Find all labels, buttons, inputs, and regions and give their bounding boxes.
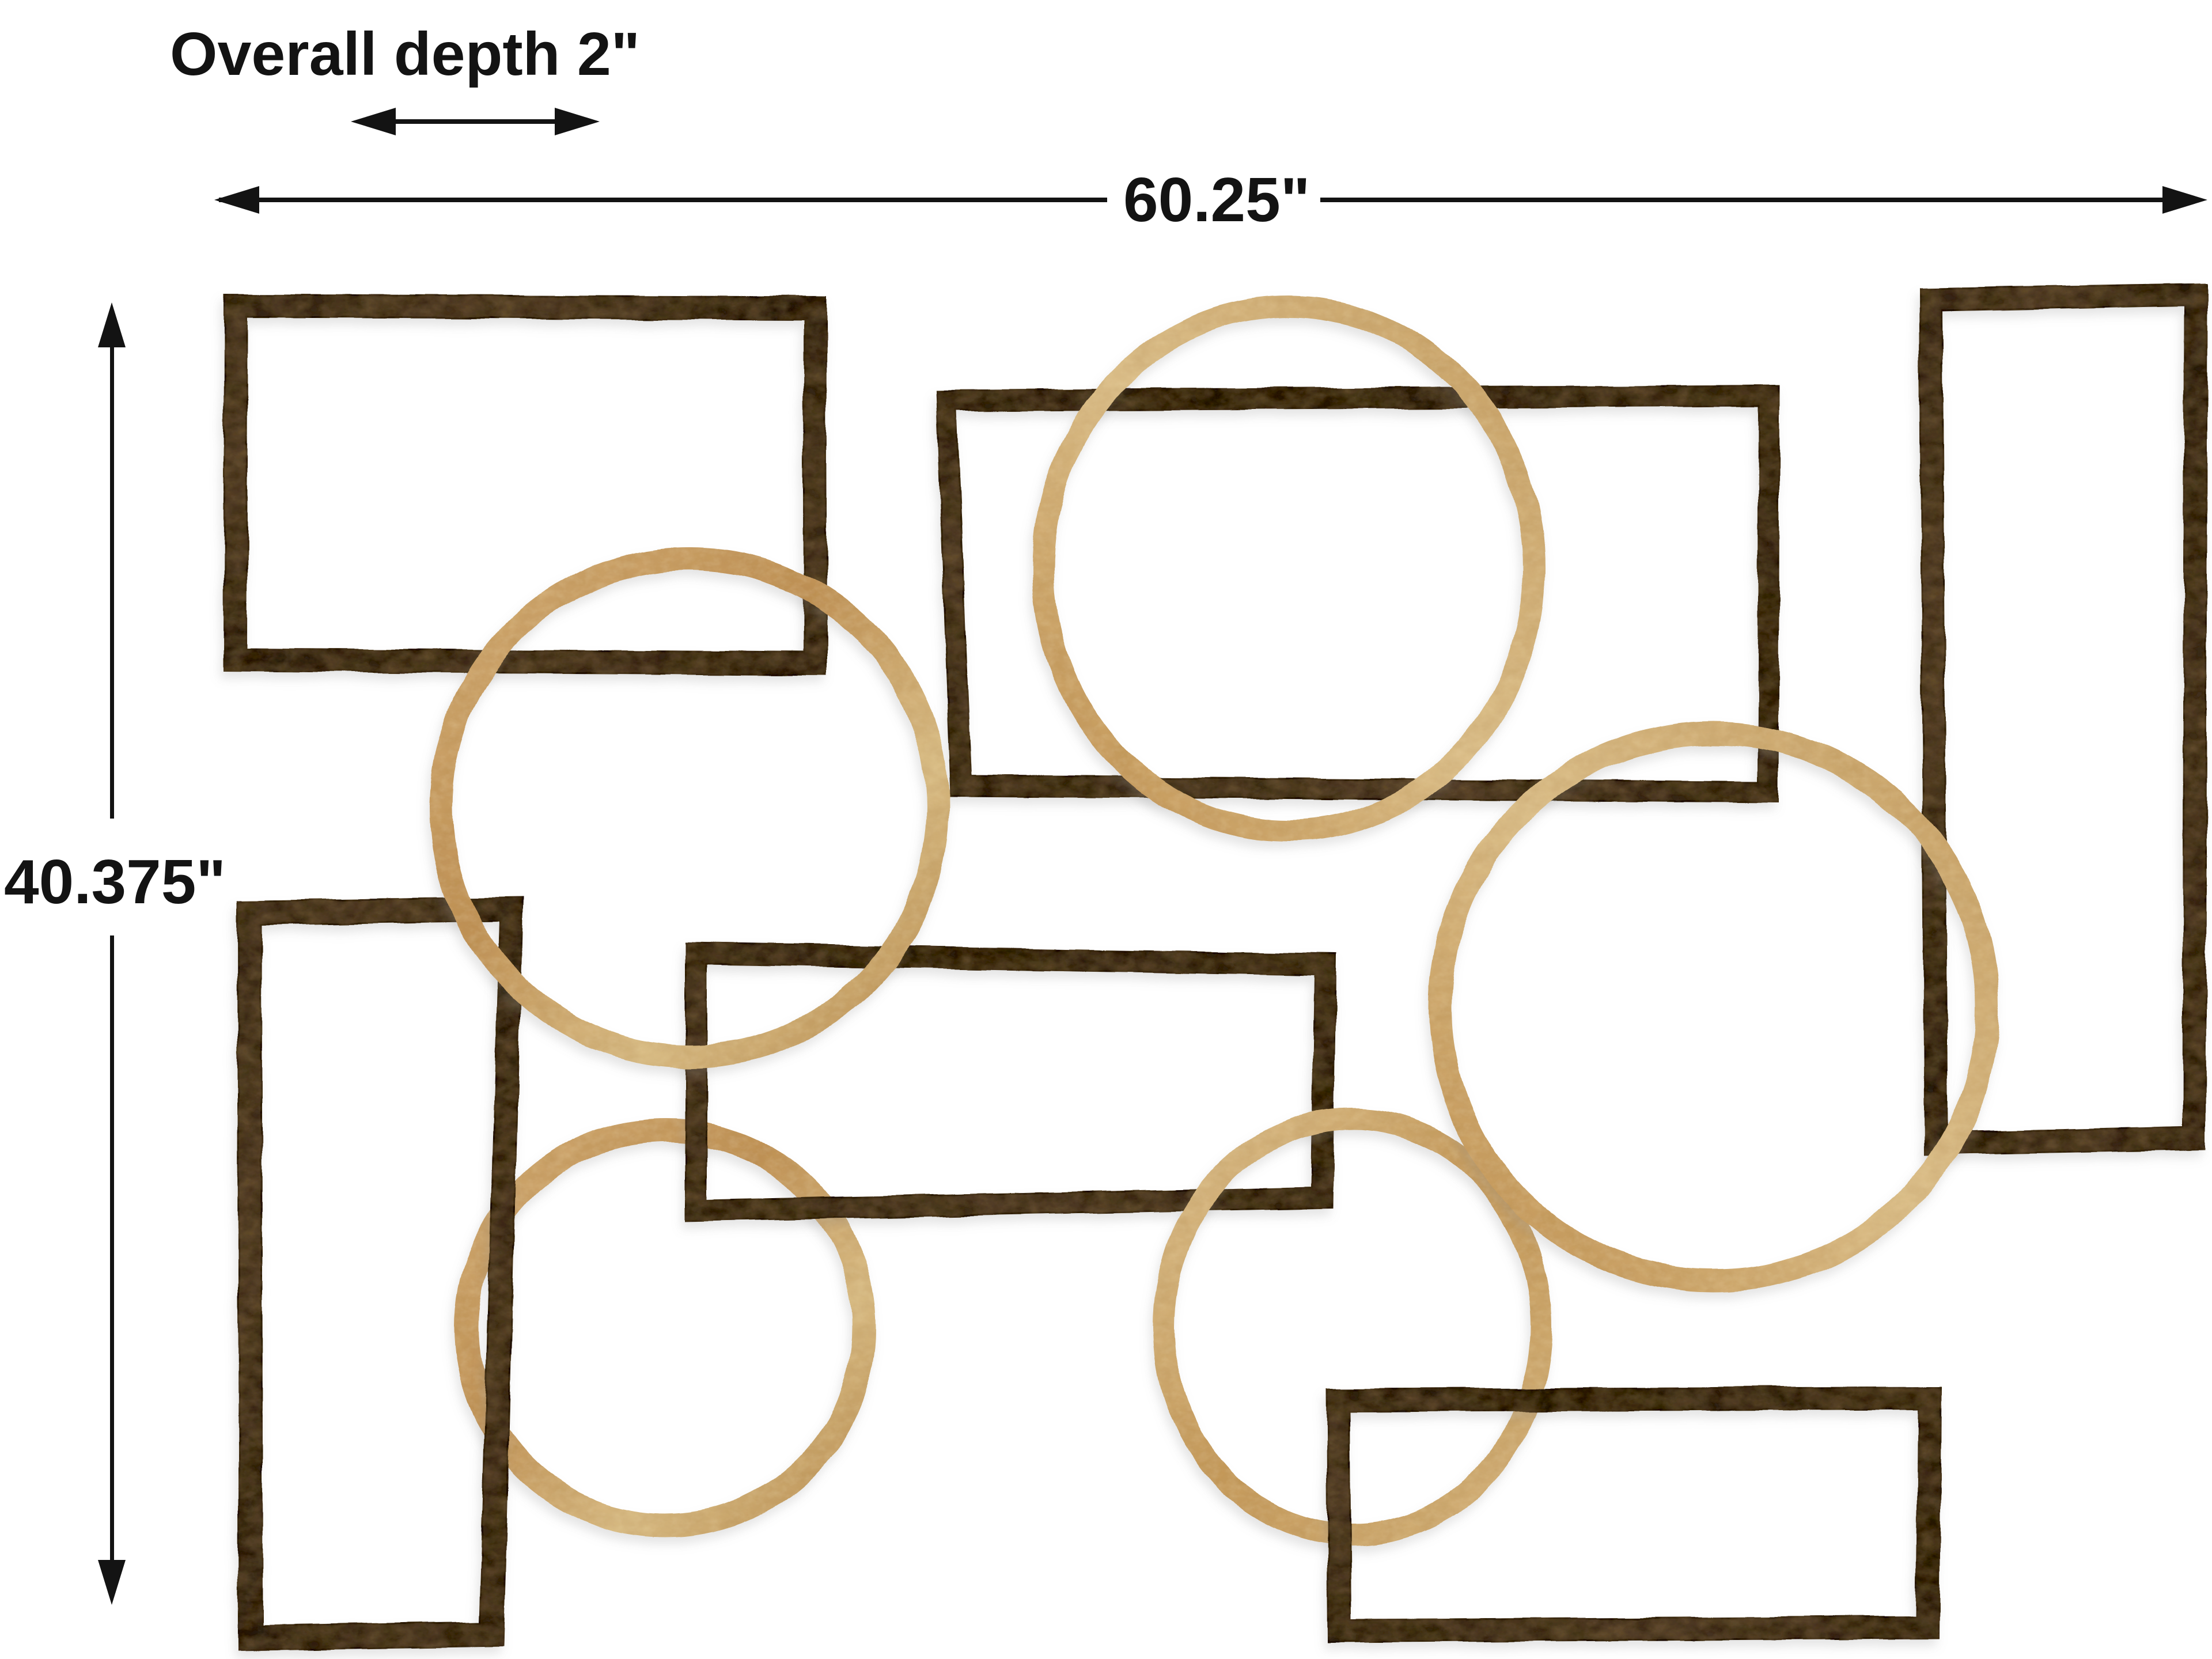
- svg-text:Overall depth 2": Overall depth 2": [170, 20, 640, 88]
- svg-text:60.25": 60.25": [1123, 165, 1310, 235]
- svg-text:40.375": 40.375": [4, 847, 226, 917]
